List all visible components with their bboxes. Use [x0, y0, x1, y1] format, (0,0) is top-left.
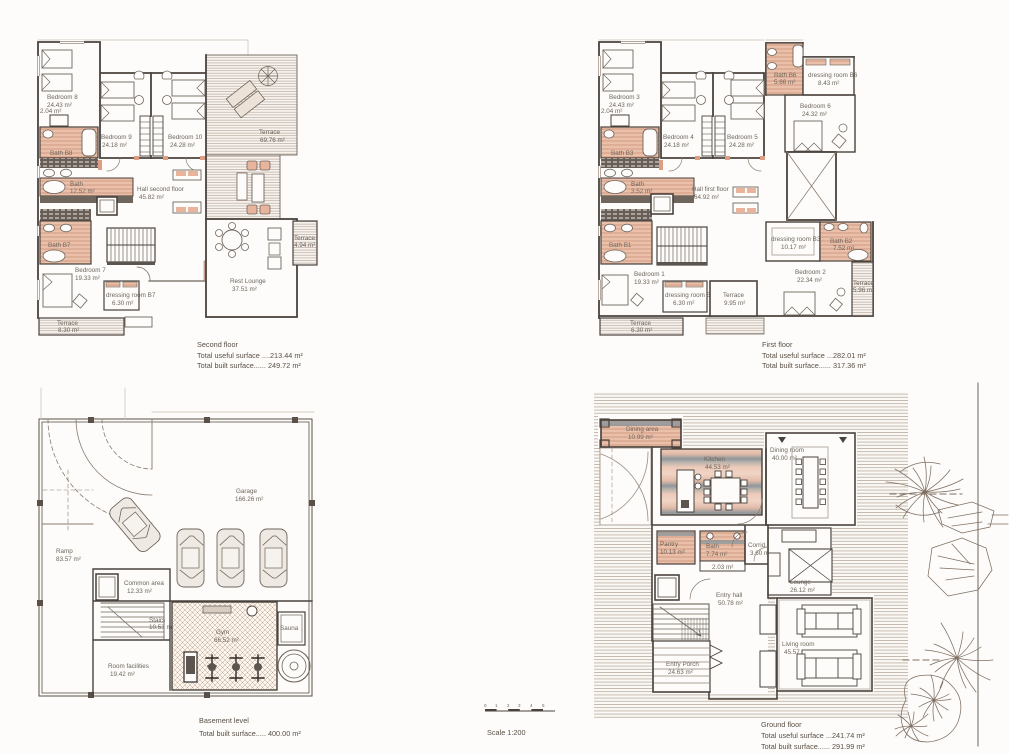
svg-text:Bath B1: Bath B1 — [609, 242, 632, 249]
svg-text:Common area: Common area — [124, 580, 164, 587]
svg-text:Hall second floor: Hall second floor — [137, 186, 184, 193]
svg-text:10.53 m²: 10.53 m² — [149, 624, 174, 631]
svg-text:5.66 m²: 5.66 m² — [774, 79, 795, 86]
svg-text:Total built surface..... 400.: Total built surface..... 400.00 m² — [199, 729, 301, 738]
svg-text:dressing room B3: dressing room B3 — [771, 236, 821, 243]
svg-text:dressing room B1: dressing room B1 — [665, 292, 715, 299]
svg-text:Ground floor: Ground floor — [761, 720, 802, 729]
svg-text:Scale 1:200: Scale 1:200 — [487, 728, 526, 737]
svg-text:Total useful surface ....213.4: Total useful surface ....213.44 m² — [197, 351, 303, 360]
svg-text:24.28 m²: 24.28 m² — [729, 142, 754, 149]
svg-text:7.74 m²: 7.74 m² — [706, 551, 727, 558]
svg-text:Bedroom 10: Bedroom 10 — [168, 134, 203, 141]
svg-text:69.76 m²: 69.76 m² — [260, 137, 285, 144]
svg-text:8.43 m²: 8.43 m² — [818, 80, 839, 87]
svg-text:Basement level: Basement level — [199, 716, 249, 725]
svg-text:Bath B6: Bath B6 — [774, 72, 797, 79]
svg-text:Bath B8: Bath B8 — [50, 150, 73, 157]
svg-text:6.30 m²: 6.30 m² — [631, 327, 652, 334]
svg-text:19.33 m²: 19.33 m² — [75, 275, 100, 282]
svg-text:Terrace: Terrace — [294, 235, 315, 242]
svg-text:Rest Lounge: Rest Lounge — [230, 278, 266, 285]
svg-text:22.34 m²: 22.34 m² — [797, 277, 822, 284]
svg-text:Gym: Gym — [216, 629, 229, 636]
svg-text:Pantry: Pantry — [660, 541, 679, 548]
svg-text:dressing room B7: dressing room B7 — [106, 292, 156, 299]
svg-text:Bedroom 3: Bedroom 3 — [609, 94, 640, 101]
svg-text:45.82 m²: 45.82 m² — [139, 194, 164, 201]
svg-text:66.52 m²: 66.52 m² — [214, 637, 239, 644]
svg-text:40.00 m²: 40.00 m² — [772, 455, 797, 462]
svg-text:10.99 m²: 10.99 m² — [628, 434, 653, 441]
svg-text:Terrace: Terrace — [57, 320, 78, 327]
svg-text:6.30 m²: 6.30 m² — [112, 300, 133, 307]
svg-text:24.18 m²: 24.18 m² — [102, 142, 127, 149]
svg-text:Total useful surface ...241.74: Total useful surface ...241.74 m² — [761, 731, 865, 740]
svg-text:10.17 m²: 10.17 m² — [781, 244, 806, 251]
svg-text:24.18 m²: 24.18 m² — [664, 142, 689, 149]
svg-text:24.32 m²: 24.32 m² — [802, 111, 827, 118]
svg-text:8.30 m²: 8.30 m² — [58, 327, 79, 334]
svg-text:Hall first floor: Hall first floor — [692, 186, 729, 193]
svg-text:Kitchen: Kitchen — [704, 456, 726, 463]
svg-text:19.42 m²: 19.42 m² — [110, 671, 135, 678]
svg-text:Total useful surface ...282.01: Total useful surface ...282.01 m² — [762, 351, 866, 360]
svg-text:First floor: First floor — [762, 340, 793, 349]
svg-text:Lounge: Lounge — [790, 579, 812, 586]
svg-text:Total built surface...... 317.: Total built surface...... 317.36 m² — [762, 361, 866, 370]
svg-text:166.26 m²: 166.26 m² — [235, 496, 263, 503]
svg-text:37.51 m²: 37.51 m² — [232, 286, 257, 293]
svg-text:Bath: Bath — [706, 543, 719, 550]
svg-text:64.92 m²: 64.92 m² — [694, 194, 719, 201]
svg-text:10.13 m²: 10.13 m² — [660, 549, 685, 556]
svg-text:Stairs: Stairs — [149, 617, 165, 624]
svg-text:24.28 m²: 24.28 m² — [170, 142, 195, 149]
svg-text:Sauna: Sauna — [280, 625, 299, 632]
svg-text:Bedroom 5: Bedroom 5 — [727, 134, 758, 141]
svg-text:Bath B2: Bath B2 — [830, 238, 853, 245]
svg-text:3.52 m²: 3.52 m² — [631, 188, 652, 195]
svg-text:Bedroom 8: Bedroom 8 — [47, 94, 78, 101]
svg-text:12.52 m²: 12.52 m² — [70, 188, 95, 195]
svg-text:Total built surface...... 291.: Total built surface...... 291.99 m² — [761, 742, 865, 751]
svg-text:Terrace: Terrace — [630, 320, 651, 327]
svg-text:Bath B3: Bath B3 — [611, 150, 634, 157]
svg-text:Room facilities: Room facilities — [108, 663, 149, 670]
svg-text:5.96 m²: 5.96 m² — [853, 287, 874, 294]
svg-text:Bedroom 7: Bedroom 7 — [75, 267, 106, 274]
svg-text:50.78 m²: 50.78 m² — [718, 600, 743, 607]
svg-text:19.33 m²: 19.33 m² — [634, 279, 659, 286]
svg-text:Living room: Living room — [782, 641, 815, 648]
svg-text:26.12 m²: 26.12 m² — [790, 587, 815, 594]
svg-text:Ramp: Ramp — [56, 548, 73, 555]
svg-text:Bedroom 6: Bedroom 6 — [800, 103, 831, 110]
svg-text:2.04 m²: 2.04 m² — [40, 108, 61, 115]
svg-text:Second floor: Second floor — [197, 340, 239, 349]
svg-text:Bath B7: Bath B7 — [48, 242, 71, 249]
svg-text:Bedroom 4: Bedroom 4 — [663, 134, 694, 141]
svg-text:dressing room B6: dressing room B6 — [808, 72, 858, 79]
svg-text:Total built surface...... 249.: Total built surface...... 249.72 m² — [197, 361, 301, 370]
svg-text:Bath: Bath — [631, 181, 644, 188]
svg-text:4.94 m²: 4.94 m² — [294, 242, 315, 249]
svg-text:Dining area: Dining area — [626, 426, 659, 433]
svg-text:Entry Porch: Entry Porch — [666, 661, 699, 668]
svg-text:Terrace: Terrace — [259, 129, 280, 136]
svg-text:44.53 m²: 44.53 m² — [705, 464, 730, 471]
svg-text:2.03 m²: 2.03 m² — [712, 564, 733, 571]
svg-text:24.63 m²: 24.63 m² — [668, 669, 693, 676]
svg-text:Terrace: Terrace — [723, 292, 744, 299]
svg-text:Entry hall: Entry hall — [716, 592, 742, 599]
svg-text:Terrace: Terrace — [853, 280, 874, 287]
svg-text:12.33 m²: 12.33 m² — [127, 588, 152, 595]
svg-text:Dining room: Dining room — [770, 447, 804, 454]
svg-text:83.57 m²: 83.57 m² — [56, 556, 81, 563]
svg-text:2.04 m²: 2.04 m² — [601, 108, 622, 115]
svg-text:Bath: Bath — [70, 181, 83, 188]
svg-text:Bedroom 1: Bedroom 1 — [634, 271, 665, 278]
svg-text:Garage: Garage — [236, 488, 258, 495]
svg-text:Corrid.: Corrid. — [748, 542, 767, 549]
svg-text:Bedroom 9: Bedroom 9 — [101, 134, 132, 141]
svg-text:6.30 m²: 6.30 m² — [673, 300, 694, 307]
svg-text:9.95 m²: 9.95 m² — [724, 300, 745, 307]
svg-text:Bedroom 2: Bedroom 2 — [795, 269, 826, 276]
